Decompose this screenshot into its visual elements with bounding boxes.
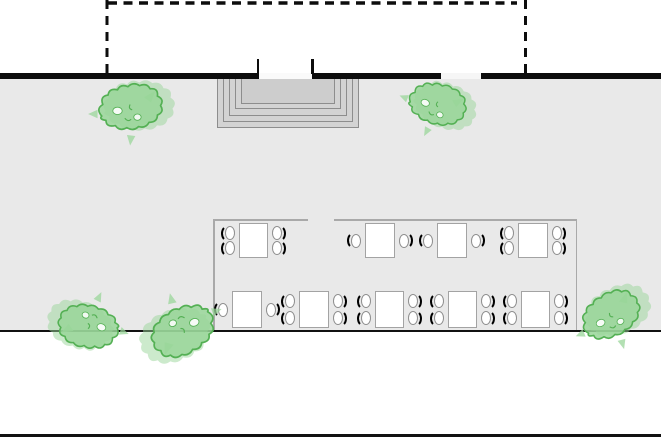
bush bbox=[36, 277, 139, 369]
bush bbox=[389, 63, 488, 153]
bush-layer bbox=[0, 0, 661, 440]
site-plan bbox=[0, 0, 661, 440]
bush bbox=[124, 279, 235, 379]
bush bbox=[562, 270, 661, 364]
bush bbox=[88, 75, 177, 146]
